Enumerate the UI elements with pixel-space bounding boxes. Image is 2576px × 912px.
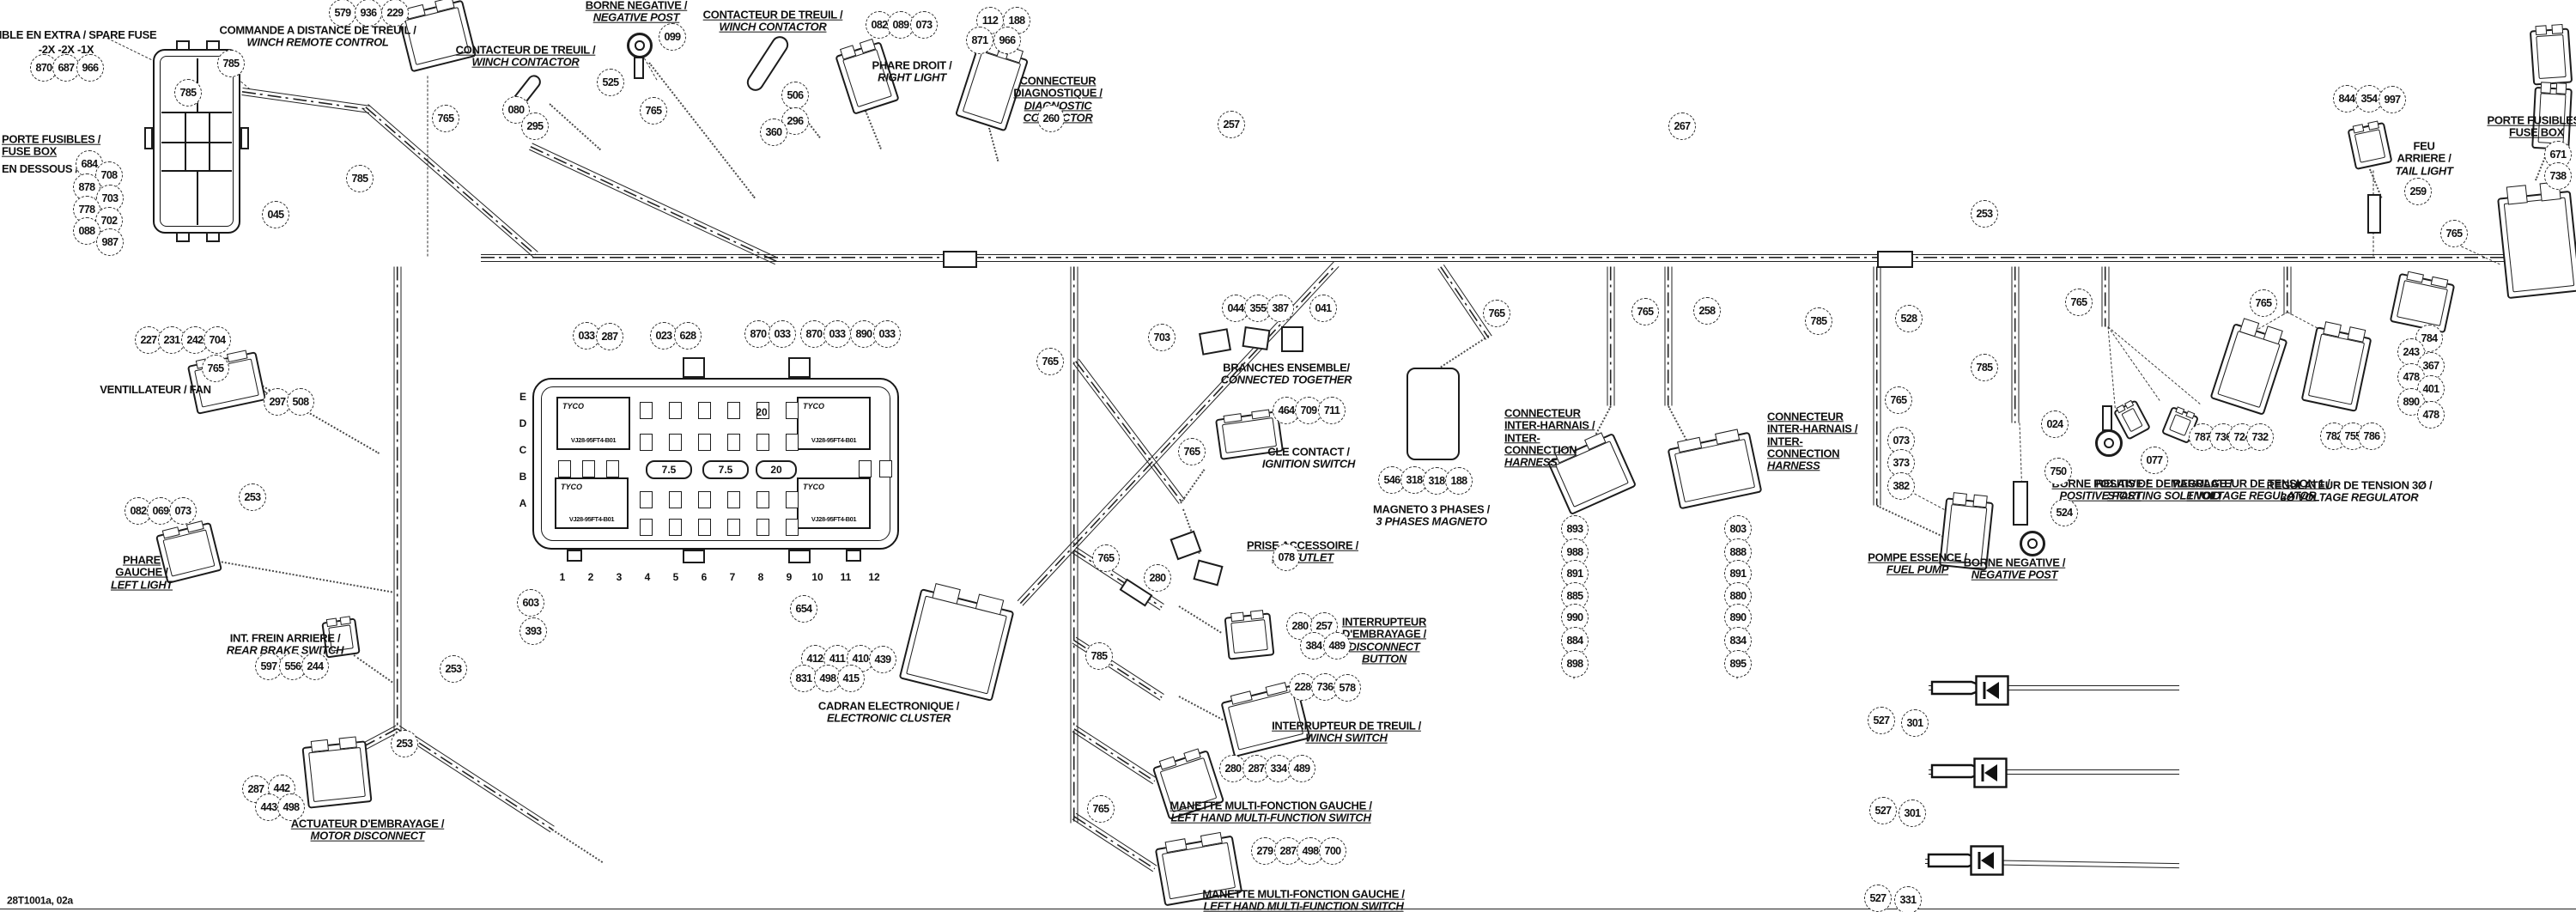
relay-block-tab (683, 357, 705, 378)
harness-segment (396, 725, 555, 832)
fuse-socket (879, 460, 892, 477)
label-tail-light-line: ARRIERE / (2395, 153, 2452, 165)
ring-terminal-negative-hole (2027, 538, 2037, 548)
cavity-number-11: 11 (841, 571, 852, 583)
balloon-524: 524 (2050, 499, 2078, 526)
fuse-socket (669, 491, 682, 508)
balloon-078: 078 (1273, 544, 1300, 571)
balloon-244: 244 (301, 653, 329, 680)
balloon-765: 765 (1631, 298, 1659, 325)
fuse-socket (756, 491, 769, 508)
label-interharness-right-line: INTER- (1767, 435, 1857, 447)
leader-line (1877, 505, 1944, 538)
balloon-280: 280 (1144, 564, 1171, 592)
label-fuse-box-right: PORTE FUSIBLES /FUSE BOX (2487, 115, 2576, 140)
label-negative-post-bottom: BORNE NEGATIVE /NEGATIVE POST (1964, 557, 2065, 582)
balloon-033: 033 (769, 320, 796, 348)
connector-motor-disconnect-pin (339, 736, 358, 749)
label-disconnect-button-line: INTERRUPTEUR (1342, 616, 1426, 628)
balloon-738: 738 (2544, 162, 2572, 190)
fuse-socket (606, 460, 619, 477)
balloon-895: 895 (1724, 650, 1752, 678)
connector-corner-a-pin (2551, 24, 2563, 34)
fuse-box-divider (185, 112, 186, 170)
leader-line (1178, 605, 1221, 633)
fuse-socket (698, 519, 711, 536)
cavity-number-7: 7 (730, 571, 736, 583)
fuse-pill: 20 (756, 460, 797, 479)
label-interharness-left-line: CONNECTEUR (1504, 407, 1595, 419)
balloon-785: 785 (217, 50, 245, 77)
cavity-number-6: 6 (702, 571, 708, 583)
connector-corner-a-pin (2535, 25, 2547, 35)
relay-block-tab (567, 550, 582, 562)
fuse-socket (640, 519, 653, 536)
label-tail-light: FEUARRIERE /TAIL LIGHT (2395, 141, 2452, 178)
label-negative-post-bottom-line: BORNE NEGATIVE / (1964, 557, 2065, 569)
balloon-253: 253 (440, 655, 467, 683)
connector-fuel-pump-pin (1973, 495, 1988, 508)
cavity-number-1: 1 (560, 571, 566, 583)
balloon-257: 257 (1218, 111, 1245, 138)
balloon-287: 287 (596, 323, 623, 350)
leader-line (648, 62, 756, 198)
label-interharness-right-line: INTER-HARNAIS / (1767, 423, 1857, 435)
label-voltage-regulator-3-line: 3Ø VOLTAGE REGULATOR (2267, 492, 2433, 504)
label-right-light: PHARE DROIT /RIGHT LIGHT (872, 60, 952, 85)
label-left-light: PHAREGAUCHE /LEFT LIGHT (111, 555, 173, 592)
fuse-box-divider (209, 112, 210, 170)
connector-dc-outlet-b (1193, 560, 1223, 587)
balloon-253: 253 (391, 730, 418, 757)
balloon-997: 997 (2379, 86, 2406, 113)
balloon-936: 936 (355, 0, 382, 27)
balloon-033: 033 (823, 320, 851, 348)
relay-cube-3: TYCOVJ28-95FT4-B01 (555, 477, 629, 529)
connector-disconnect-button-pin (1250, 611, 1264, 620)
label-winch-contactor-2-line: WINCH CONTACTOR (703, 21, 843, 33)
relay-block-tab (788, 550, 811, 563)
label-winch-remote: COMMANDE A DISTANCE DE TREUIL /WINCH REM… (219, 25, 416, 50)
fuse-box-tab (176, 232, 190, 242)
harness-segment (2284, 266, 2292, 314)
label-diagnostic-line: DIAGNOSTIQUE / (1013, 88, 1102, 100)
relay-brand: TYCO (561, 483, 582, 491)
leader-line (1179, 696, 1224, 720)
fuse-box-tab (144, 127, 153, 149)
balloon-765: 765 (2065, 289, 2093, 316)
fuse-box-divider (161, 170, 232, 172)
label-connected-together: BRANCHES ENSEMBLE/CONNECTED TOGETHER (1221, 362, 1352, 387)
balloon-253: 253 (239, 483, 266, 511)
balloon-527: 527 (1864, 885, 1892, 912)
balloon-703: 703 (1148, 324, 1176, 351)
balloon-045: 045 (262, 201, 289, 228)
leader-line (215, 560, 392, 593)
harness-segment (1071, 266, 1078, 823)
relay-cube-4: TYCOVJ28-95FT4-B01 (797, 477, 871, 529)
harness-segment (2102, 266, 2110, 326)
connector-regulator-3ph-face (2308, 333, 2365, 404)
leader-line (1668, 406, 1687, 441)
balloon-393: 393 (519, 617, 547, 645)
balloon-765: 765 (1087, 795, 1115, 823)
row-letter-E: E (519, 391, 526, 403)
balloon-765: 765 (1483, 300, 1510, 327)
label-connected-together-line: BRANCHES ENSEMBLE/ (1221, 362, 1352, 374)
label-right-light-line: RIGHT LIGHT (872, 72, 952, 84)
relay-cube-2: TYCOVJ28-95FT4-B01 (797, 397, 871, 450)
harness-segment (1874, 266, 1881, 505)
balloon-506: 506 (781, 82, 809, 109)
leader-line (988, 128, 999, 161)
connector-rear-harness (2390, 273, 2456, 333)
label-multifunction-2-line: MANETTE MULTI-FONCTION GAUCHE / (1202, 889, 1404, 901)
connector-cluster (899, 588, 1015, 702)
balloon-898: 898 (1561, 650, 1589, 678)
label-winch-contactor-2: CONTACTEUR DE TREUIL /WINCH CONTACTOR (703, 9, 843, 34)
fuse-top-value: 20 (756, 406, 767, 418)
connector-corner-b-pin (2555, 82, 2567, 94)
balloon-765: 765 (432, 105, 459, 132)
label-winch-remote-line: COMMANDE A DISTANCE DE TREUIL / (219, 25, 416, 37)
balloon-360: 360 (760, 119, 787, 146)
leader-line (2108, 326, 2116, 408)
label-winch-switch-line: WINCH SWITCH (1272, 733, 1421, 745)
row-letter-D: D (519, 417, 527, 429)
balloon-489: 489 (1288, 755, 1315, 782)
balloon-489: 489 (1323, 632, 1351, 660)
label-dc-outlet-line: PRISE ACCESSOIRE / (1247, 540, 1358, 552)
connector-disconnect-button-pin (1230, 612, 1244, 622)
label-interharness-right: CONNECTEURINTER-HARNAIS /INTER-CONNECTIO… (1767, 410, 1857, 471)
label-winch-contactor-2-line: CONTACTEUR DE TREUIL / (703, 9, 843, 21)
label-ignition-switch-line: IGNITION SWITCH (1262, 459, 1355, 471)
label-winch-contactor-1-line: CONTACTEUR DE TREUIL / (456, 45, 596, 57)
label-magneto-line: MAGNETO 3 PHASES / (1373, 504, 1490, 516)
label-left-light-line: GAUCHE / (111, 567, 173, 579)
label-winch-contactor-1: CONTACTEUR DE TREUIL /WINCH CONTACTOR (456, 45, 596, 70)
label-right-light-line: PHARE DROIT / (872, 60, 952, 72)
balloon-099: 099 (659, 23, 686, 51)
connector-branch-a (1199, 328, 1231, 356)
terminal-solenoid-1-face (2121, 408, 2142, 433)
fuse-box-rear (2497, 191, 2576, 299)
label-rear-brake: INT. FREIN ARRIERE /REAR BRAKE SWITCH (227, 633, 343, 658)
label-motor-disconnect-line: MOTOR DISCONNECT (291, 830, 444, 842)
relay-block-tab (683, 550, 705, 563)
fuse-socket (756, 434, 769, 451)
fuse-box-tab (240, 127, 249, 149)
balloon-415: 415 (837, 665, 865, 692)
harness-segment (1072, 725, 1157, 784)
label-cluster-line: ELECTRONIC CLUSTER (818, 713, 959, 725)
balloon-267: 267 (1668, 112, 1696, 140)
fuse-socket (786, 402, 799, 419)
harness-segment (1607, 266, 1615, 405)
fuse-box-tab (206, 232, 220, 242)
cavity-number-5: 5 (673, 571, 679, 583)
balloon-785: 785 (174, 79, 202, 106)
fuse-box-rear-pin (2506, 185, 2528, 205)
balloon-765: 765 (1885, 386, 1912, 414)
connector-fuel-pump-pin (1953, 492, 1967, 506)
label-multifunction-1: MANETTE MULTI-FONCTION GAUCHE /LEFT HAND… (1170, 800, 1371, 825)
fuse-pill: 7.5 (646, 460, 692, 479)
balloon-259: 259 (2404, 178, 2432, 205)
sleeve-negative-post (2013, 481, 2028, 526)
relay-part-number: VJ28-95FT4-B01 (799, 515, 869, 523)
cavity-number-10: 10 (811, 571, 823, 583)
connector-magneto (1406, 368, 1460, 460)
fuse-socket (698, 402, 711, 419)
fuse-socket (859, 460, 872, 477)
balloon-387: 387 (1267, 295, 1294, 322)
row-letter-C: C (519, 444, 527, 456)
connector-disconnect-button-face (1230, 619, 1268, 654)
fuse-box-rear-face (2504, 198, 2574, 293)
connector-tail-light (2347, 122, 2392, 170)
connector-dc-outlet-a (1170, 531, 1201, 561)
relay-cube-1: TYCOVJ28-95FT4-B01 (556, 397, 630, 450)
balloon-785: 785 (1085, 642, 1113, 670)
label-spare-fuse-line: FUSIBLE EN EXTRA / SPARE FUSE (0, 29, 156, 41)
label-interharness-right-line: CONNECTION (1767, 447, 1857, 459)
harness-segment (1072, 636, 1164, 700)
fuse-socket (558, 460, 571, 477)
leader-line (2020, 423, 2022, 483)
label-interharness-right-line: CONNECTEUR (1767, 410, 1857, 423)
label-rear-brake-line: INT. FREIN ARRIERE / (227, 633, 343, 645)
label-spare-fuse: FUSIBLE EN EXTRA / SPARE FUSE (0, 29, 156, 41)
leader-line (549, 103, 601, 150)
balloon-077: 077 (2141, 447, 2168, 474)
relay-block-tab (788, 357, 811, 378)
balloon-260: 260 (1037, 105, 1065, 132)
ring-terminal-positive-hole (2104, 438, 2114, 448)
row-letter-A: A (519, 497, 527, 509)
label-winch-remote-line: WINCH REMOTE CONTROL (219, 37, 416, 49)
balloon-041: 041 (1309, 295, 1337, 322)
balloon-188: 188 (1445, 467, 1473, 495)
connector-corner-a (2530, 27, 2573, 85)
balloon-786: 786 (2358, 423, 2385, 450)
label-fuel-pump: POMPE ESSENCE /FUEL PUMP (1868, 552, 1966, 577)
balloon-073: 073 (169, 497, 197, 525)
label-interharness-left: CONNECTEURINTER-HARNAIS /INTER-CONNECTIO… (1504, 407, 1595, 468)
fuse-box-divider (161, 112, 232, 113)
fuse-socket (786, 434, 799, 451)
balloon-528: 528 (1895, 305, 1923, 332)
balloon-711: 711 (1318, 397, 1346, 424)
label-multifunction-2: MANETTE MULTI-FONCTION GAUCHE /LEFT HAND… (1202, 889, 1404, 912)
leader-line (107, 38, 155, 62)
label-negative-post-top-line: BORNE NEGATIVE / (586, 0, 687, 12)
diode-symbol-2 (1973, 757, 2008, 788)
connector-corner-b-pin (2540, 82, 2551, 94)
connector-rear-brake-switch-pin (326, 618, 337, 627)
fuse-box-divider (197, 170, 198, 225)
label-magneto-line: 3 PHASES MAGNETO (1373, 516, 1490, 528)
balloon-765: 765 (202, 355, 229, 382)
label-dc-outlet: PRISE ACCESSOIRE /DC OUTLET (1247, 540, 1358, 565)
balloon-732: 732 (2246, 423, 2274, 451)
fuse-pill: 7.5 (702, 460, 749, 479)
cavity-number-4: 4 (645, 571, 651, 583)
balloon-765: 765 (2440, 220, 2468, 247)
connector-motor-disconnect-pin (310, 739, 329, 752)
balloon-439: 439 (869, 646, 896, 673)
label-magneto: MAGNETO 3 PHASES /3 PHASES MAGNETO (1373, 504, 1490, 529)
connector-branch-b (1242, 326, 1270, 350)
balloon-871: 871 (966, 27, 993, 54)
label-disconnect-button-line: D'EMBRAYAGE / (1342, 629, 1426, 641)
label-negative-post-top: BORNE NEGATIVE /NEGATIVE POST (586, 0, 687, 24)
label-cluster: CADRAN ELECTRONIQUE /ELECTRONIC CLUSTER (818, 701, 959, 726)
fuse-socket (727, 519, 740, 536)
fuse-socket (698, 491, 711, 508)
balloon-765: 765 (1178, 438, 1206, 465)
label-interharness-left-line: INTER- (1504, 432, 1595, 444)
leader-line (865, 111, 882, 149)
connector-branch-c (1281, 326, 1303, 352)
blade-negative-top (634, 57, 644, 79)
fuse-socket (786, 491, 799, 508)
leader-line (1435, 335, 1490, 372)
harness-segment (481, 254, 2537, 262)
balloon-478: 478 (2417, 401, 2445, 429)
fuse-socket (669, 519, 682, 536)
label-winch-switch: INTERRUPTEUR DE TREUIL /WINCH SWITCH (1272, 720, 1421, 745)
balloon-073: 073 (910, 11, 938, 39)
balloon-579: 579 (329, 0, 356, 27)
balloon-765: 765 (1092, 544, 1120, 572)
balloon-033: 033 (873, 320, 901, 348)
fuse-socket (640, 434, 653, 451)
balloon-700: 700 (1319, 837, 1346, 865)
label-disconnect-button-line: BUTTON (1342, 653, 1426, 665)
relay-part-number: VJ28-95FT4-B01 (558, 436, 629, 444)
connector-motor-disconnect-face (308, 747, 366, 802)
connector-regulator-3ph (2301, 326, 2372, 412)
label-interharness-left-line: CONNECTION (1504, 444, 1595, 456)
ring-terminal-negative-top-hole (635, 40, 644, 50)
cavity-number-12: 12 (868, 571, 879, 583)
relay-block-tab (846, 550, 861, 562)
fuse-socket (669, 434, 682, 451)
label-tail-light-line: TAIL LIGHT (2395, 165, 2452, 177)
balloon-295: 295 (521, 112, 549, 140)
label-negative-post-bottom-line: NEGATIVE POST (1964, 569, 2065, 581)
harness-segment (394, 266, 402, 730)
label-winch-contactor-1-line: WINCH CONTACTOR (456, 57, 596, 69)
balloon-301: 301 (1901, 709, 1929, 737)
fuse-socket (786, 519, 799, 536)
label-multifunction-1-line: MANETTE MULTI-FONCTION GAUCHE / (1170, 800, 1371, 812)
label-voltage-regulator-3-line: REGULATEUR DE TENSION 3Ø / (2267, 480, 2433, 492)
footer-code: 28T1001a, 02a (7, 895, 73, 906)
diode-symbol-3 (1970, 845, 2004, 876)
relay-part-number: VJ28-95FT4-B01 (799, 436, 869, 444)
harness-segment (241, 88, 370, 113)
label-ignition-switch: CLE CONTACT /IGNITION SWITCH (1262, 447, 1355, 471)
connector-interharness-right (1668, 432, 1763, 510)
label-left-light-line: PHARE (111, 555, 173, 567)
balloon-966: 966 (76, 54, 104, 82)
leader-line (551, 829, 603, 863)
label-motor-disconnect: ACTUATEUR D'EMBRAYAGE /MOTOR DISCONNECT (291, 818, 444, 843)
wiring-diagram-page: 28T1001a, 02a TYCOVJ28-95FT4-B01TYCOVJ28… (0, 0, 2576, 912)
balloon-301: 301 (1899, 800, 1926, 827)
balloon-258: 258 (1693, 297, 1721, 325)
label-disconnect-button-line: DISCONNECT (1342, 641, 1426, 653)
label-fuse-box-right-line: FUSE BOX (2487, 127, 2576, 139)
balloon-785: 785 (346, 165, 374, 192)
balloon-704: 704 (204, 326, 231, 354)
balloon-765: 765 (1036, 348, 1064, 375)
fuse-socket (640, 402, 653, 419)
balloon-508: 508 (287, 388, 314, 416)
harness-segment (1665, 266, 1673, 405)
label-multifunction-2-line: LEFT HAND MULTI-FUNCTION SWITCH (1202, 901, 1404, 912)
label-interharness-left-line: INTER-HARNAIS / (1504, 420, 1595, 432)
label-tail-light-line: FEU (2395, 141, 2452, 153)
label-interharness-left-line: HARNESS (1504, 456, 1595, 468)
label-fan: VENTILLATEUR / FAN (100, 384, 210, 396)
connector-rear-brake-switch-pin (340, 617, 350, 625)
balloon-527: 527 (1869, 797, 1897, 824)
fuse-box-divider (161, 142, 232, 143)
diode-symbol-1 (1975, 675, 2009, 706)
blade-positive-post (2102, 405, 2112, 431)
harness-segment (1072, 812, 1157, 872)
label-diagnostic-line: CONNECTEUR (1013, 75, 1102, 87)
label-winch-switch-line: INTERRUPTEUR DE TREUIL / (1272, 720, 1421, 733)
balloon-785: 785 (1971, 354, 1998, 381)
row-letter-B: B (519, 471, 527, 483)
relay-brand: TYCO (803, 483, 824, 491)
connector-regulator-1 (2209, 323, 2287, 416)
balloon-024: 024 (2041, 410, 2069, 438)
relay-brand: TYCO (803, 402, 824, 410)
cavity-number-8: 8 (758, 571, 764, 583)
balloon-654: 654 (790, 595, 817, 623)
fuse-socket (698, 434, 711, 451)
balloon-498: 498 (277, 793, 305, 821)
fuse-socket (727, 402, 740, 419)
harness-segment (529, 143, 778, 264)
sleeve-trunk-528 (1877, 251, 1913, 268)
label-motor-disconnect-line: ACTUATEUR D'EMBRAYAGE / (291, 818, 444, 830)
label-disconnect-button: INTERRUPTEURD'EMBRAYAGE /DISCONNECTBUTTO… (1342, 616, 1426, 665)
label-multifunction-1-line: LEFT HAND MULTI-FUNCTION SWITCH (1170, 812, 1371, 824)
balloon-765: 765 (640, 97, 667, 125)
cavity-number-2: 2 (588, 571, 594, 583)
label-fuse-box-left-line: PORTE FUSIBLES / (2, 134, 100, 146)
balloon-785: 785 (1805, 307, 1832, 335)
balloon-331: 331 (1894, 886, 1922, 912)
harness-segment (2012, 266, 2020, 423)
connector-corner-a-face (2536, 34, 2566, 79)
harness-segment (1437, 264, 1492, 339)
balloon-229: 229 (381, 0, 409, 27)
label-interharness-right-line: HARNESS (1767, 459, 1857, 471)
balloon-527: 527 (1868, 707, 1895, 734)
balloon-628: 628 (674, 322, 702, 350)
fuse-box-tab (176, 40, 190, 51)
label-cluster-line: CADRAN ELECTRONIQUE / (818, 701, 959, 713)
cavity-number-9: 9 (787, 571, 793, 583)
